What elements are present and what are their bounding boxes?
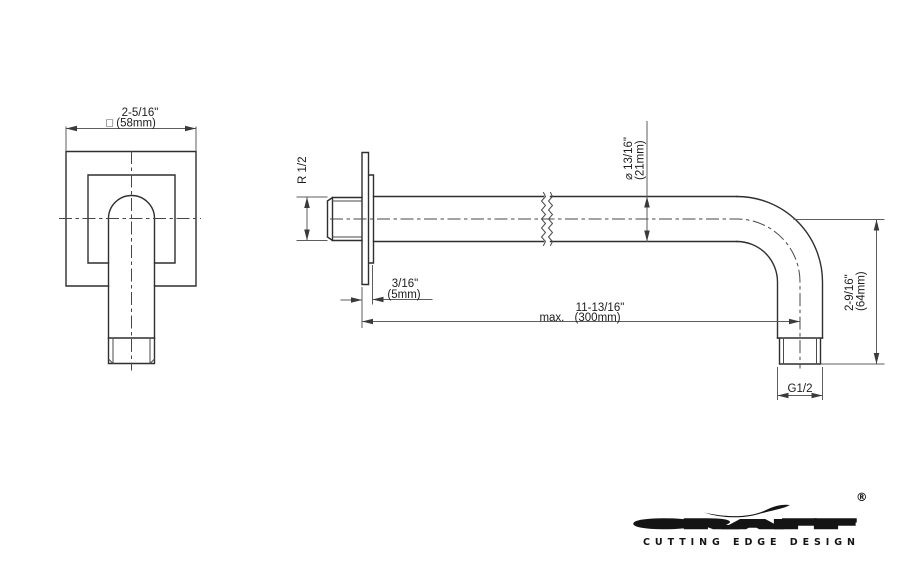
dim-thread-label: G1/2 bbox=[788, 383, 813, 395]
dim-radius: R 1/2 bbox=[297, 157, 327, 241]
dim-front-width-mm: □ (58mm) bbox=[106, 118, 156, 130]
dim-drop-inches: 2-9/16" bbox=[844, 274, 856, 311]
dim-diameter-mm: (21mm) bbox=[635, 140, 647, 180]
side-view-bend bbox=[737, 197, 823, 339]
technical-drawing-page: 2-5/16" □ (58mm) R 1/2 bbox=[0, 0, 906, 569]
dim-thread: G1/2 bbox=[778, 368, 823, 400]
logo-registered-mark: ® bbox=[856, 490, 868, 504]
dim-drop-mm: (64mm) bbox=[856, 271, 868, 311]
logo-tagline: CUTTING EDGE DESIGN bbox=[643, 537, 855, 548]
dim-radius-label: R 1/2 bbox=[297, 157, 309, 185]
front-view: 2-5/16" □ (58mm) bbox=[59, 107, 201, 371]
dim-drop: 2-9/16" (64mm) bbox=[794, 220, 884, 365]
side-view: R 1/2 3/16" (5mm) ⌀ 13/16" (21mm) 11-13/… bbox=[297, 122, 884, 400]
dim-length-mm: max. (300mm) bbox=[539, 312, 620, 324]
logo-brand-text: GRAFF bbox=[637, 517, 855, 531]
dim-diameter: ⌀ 13/16" (21mm) bbox=[623, 122, 650, 242]
dim-plate-thickness: 3/16" (5mm) bbox=[341, 266, 432, 328]
dim-diameter-inches: ⌀ 13/16" bbox=[623, 137, 635, 180]
dim-plate-thickness-mm: (5mm) bbox=[387, 289, 420, 301]
dim-front-width: 2-5/16" □ (58mm) bbox=[66, 107, 196, 150]
dim-length: 11-13/16" max. (300mm) bbox=[362, 302, 800, 324]
graff-logo: GRAFF ® CUTTING EDGE DESIGN bbox=[637, 490, 868, 548]
